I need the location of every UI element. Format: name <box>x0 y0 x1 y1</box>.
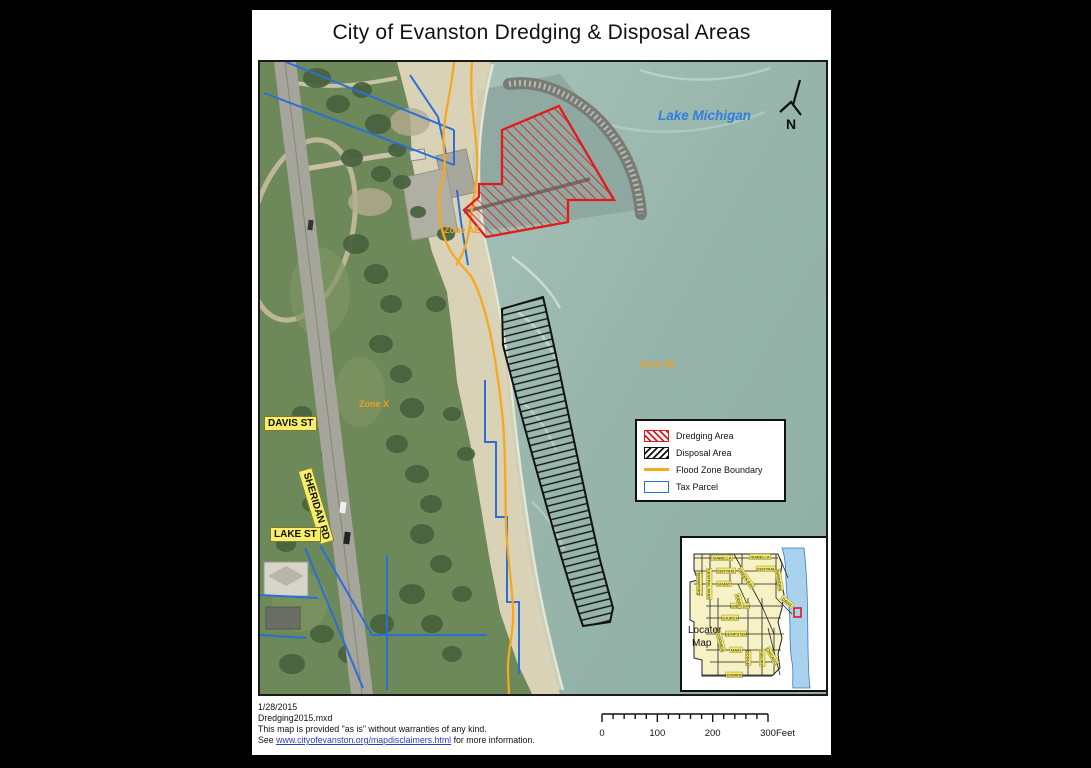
lake-michigan-label: Lake Michigan <box>658 108 751 123</box>
dredging-area-swatch <box>644 430 669 442</box>
locator-map: ISABELLAISABELLACENTRALCENTRALGRANTEMERS… <box>680 536 828 692</box>
disclaimer-link[interactable]: www.cityofevanston.org/mapdisclaimers.ht… <box>276 735 451 745</box>
svg-text:HOWARD: HOWARD <box>725 673 743 678</box>
davis-st-label: DAVIS ST <box>264 416 317 431</box>
footer-link-prefix: See <box>258 735 276 745</box>
legend-item-dredging: Dredging Area <box>644 427 777 444</box>
flood-zone-swatch <box>644 468 669 471</box>
zone-x-label: Zone X <box>359 399 389 409</box>
map-page: City of Evanston Dredging & Disposal Are… <box>252 10 831 755</box>
svg-text:ASBURY: ASBURY <box>759 650 764 667</box>
page-title: City of Evanston Dredging & Disposal Are… <box>252 21 831 45</box>
svg-text:CHURCH: CHURCH <box>721 616 738 621</box>
footer-notes: 1/28/2015 Dredging2015.mxd This map is p… <box>258 702 535 746</box>
locator-map-drawing: ISABELLAISABELLACENTRALCENTRALGRANTEMERS… <box>682 538 826 690</box>
legend-item-flood-zone: Flood Zone Boundary <box>644 461 777 478</box>
svg-text:ISABELLA: ISABELLA <box>751 555 770 560</box>
footer-link-line: See www.cityofevanston.org/mapdisclaimer… <box>258 735 535 746</box>
footer-disclaimer: This map is provided "as is" without war… <box>258 724 535 735</box>
svg-text:CRAWFORD: CRAWFORD <box>696 572 701 596</box>
lake-st-label: LAKE ST <box>270 527 321 542</box>
svg-text:0: 0 <box>599 728 604 739</box>
legend-label: Disposal Area <box>676 448 732 458</box>
svg-text:DODGE: DODGE <box>745 651 750 666</box>
zone-ae-harbor-label: Zone AE <box>444 225 480 235</box>
scale-bar-ticks <box>602 714 768 722</box>
footer-filename: Dredging2015.mxd <box>258 713 535 724</box>
tax-parcel-swatch <box>644 481 669 493</box>
scale-bar: 0100200300Feet <box>598 706 813 742</box>
scale-bar-labels: 0100200300Feet <box>599 728 795 739</box>
svg-text:Feet: Feet <box>776 728 795 739</box>
svg-text:ISABELLA: ISABELLA <box>713 556 732 561</box>
legend-item-disposal: Disposal Area <box>644 444 777 461</box>
svg-text:100: 100 <box>649 728 665 739</box>
legend-label: Dredging Area <box>676 431 734 441</box>
footer-date: 1/28/2015 <box>258 702 535 713</box>
north-arrow-label: N <box>786 116 796 132</box>
svg-text:300: 300 <box>760 728 776 739</box>
svg-text:GRANT: GRANT <box>717 582 732 587</box>
disposal-area-swatch <box>644 447 669 459</box>
svg-text:200: 200 <box>705 728 721 739</box>
legend-label: Tax Parcel <box>676 482 718 492</box>
footer-link-suffix: for more information. <box>451 735 535 745</box>
svg-text:CENTRAL PARK: CENTRAL PARK <box>706 569 711 600</box>
svg-text:CENTRAL: CENTRAL <box>717 569 736 574</box>
locator-title-2: Map <box>692 638 712 649</box>
legend-label: Flood Zone Boundary <box>676 465 763 475</box>
legend: Dredging Area Disposal Area Flood Zone B… <box>635 419 786 502</box>
svg-text:MAIN: MAIN <box>731 648 741 653</box>
map-canvas: N Lake Michigan Zone AE Zone AE Zone X D… <box>258 60 828 696</box>
legend-item-tax-parcel: Tax Parcel <box>644 478 777 495</box>
svg-text:DEMPSTER: DEMPSTER <box>725 632 747 637</box>
zone-ae-lake-label: Zone AE <box>639 359 675 369</box>
svg-text:CENTRAL: CENTRAL <box>757 567 776 572</box>
locator-title-1: Locator <box>688 625 722 636</box>
